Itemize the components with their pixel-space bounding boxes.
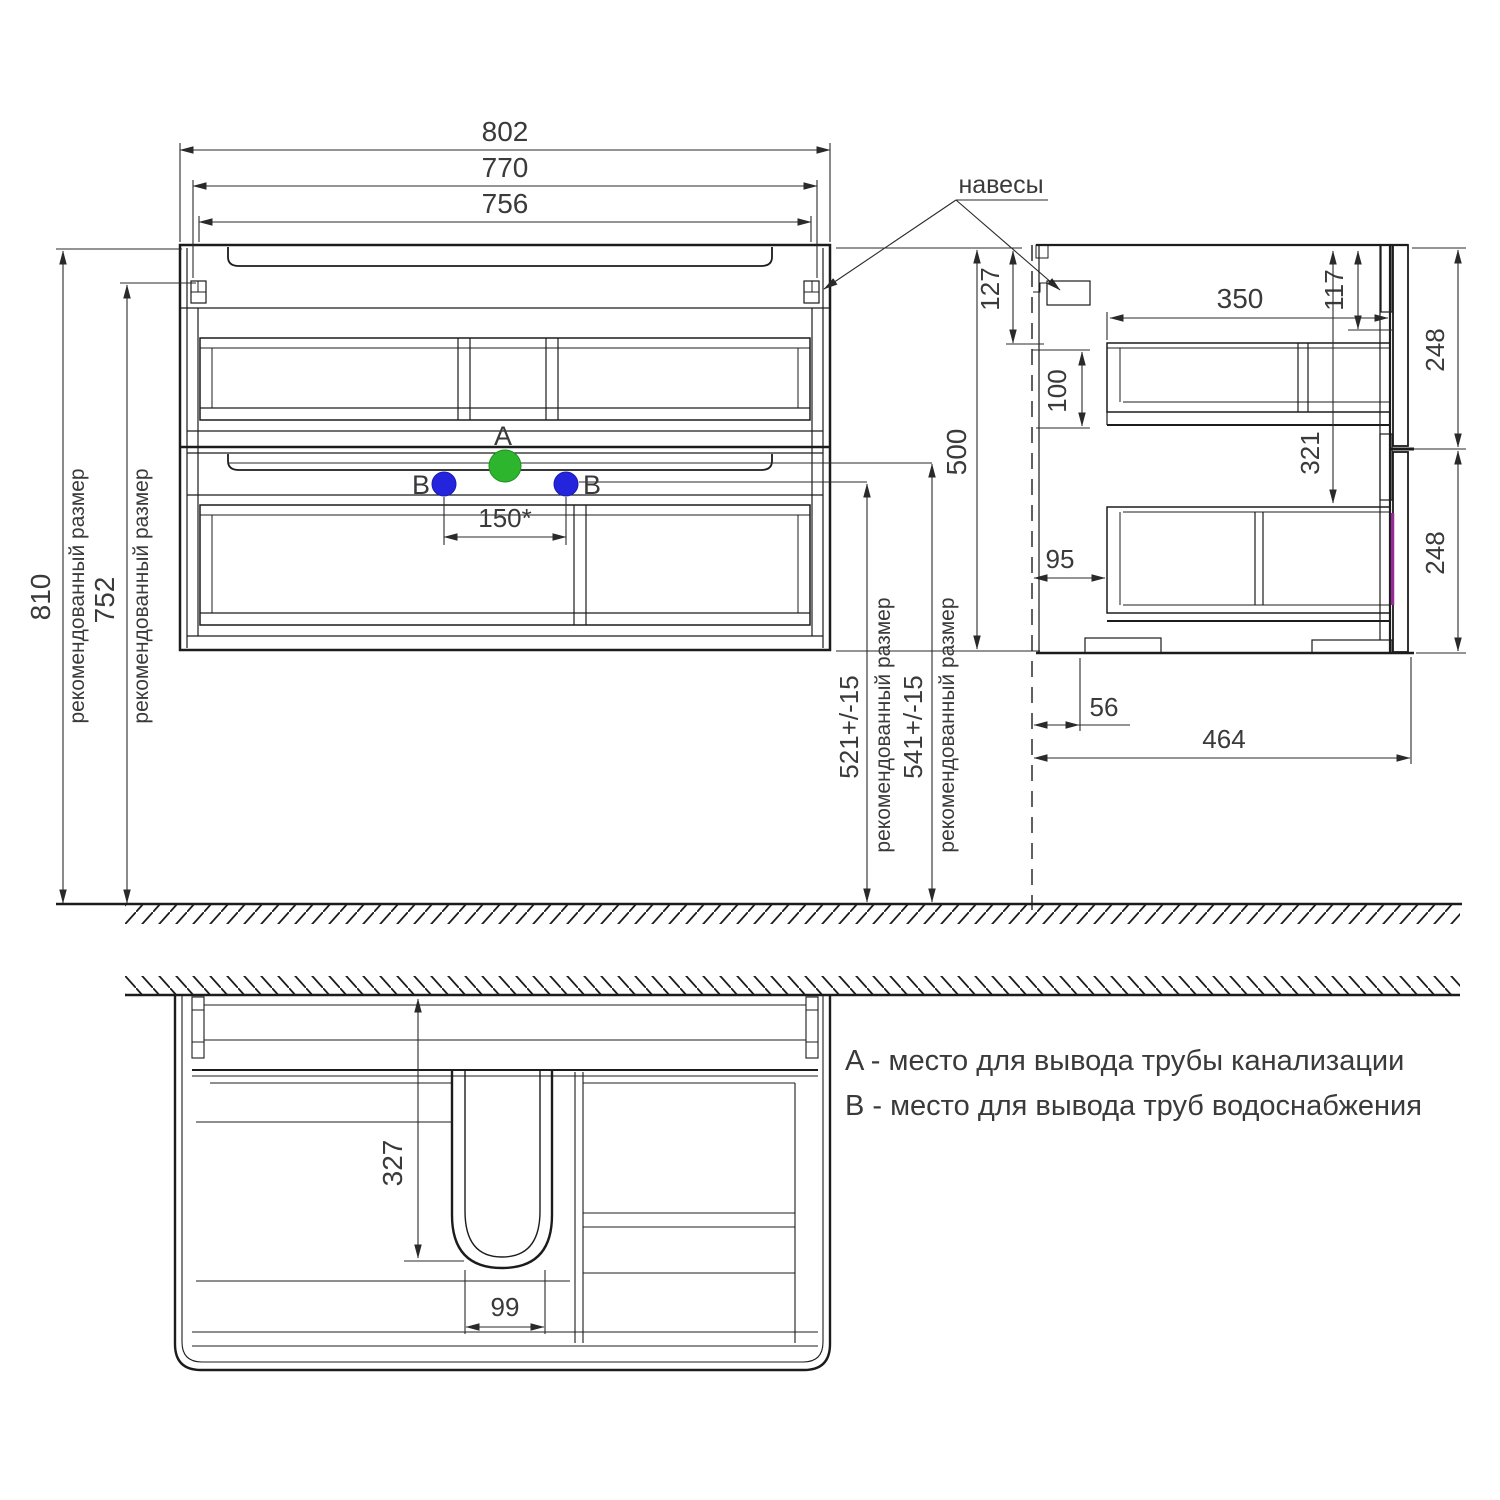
water-outlet-marker-b-right xyxy=(554,472,578,496)
dim-810-note: рекомендованный размер xyxy=(66,468,89,723)
dim-521-label: 521+/-15 xyxy=(834,675,864,778)
legend-item-a: A - место для вывода трубы канализации xyxy=(845,1045,1404,1077)
technical-drawing-page: A B B 150* 802 770 756 810 рекомендованн… xyxy=(0,0,1500,1500)
legend-item-b: B - место для вывода труб водоснабжения xyxy=(845,1090,1422,1122)
dim-drain-spacing: 150* xyxy=(444,497,566,545)
dim-541-note: рекомендованный размер xyxy=(936,597,959,852)
marker-a-label: A xyxy=(494,421,512,451)
siphon-cutout-outer xyxy=(452,1070,552,1268)
dim-99-label: 99 xyxy=(491,1292,520,1322)
wall-hatch xyxy=(125,976,1460,995)
front-view: A B B 150* xyxy=(180,245,932,650)
front-top-dimensions: 802 770 756 xyxy=(180,116,830,278)
side-foot-left xyxy=(1085,638,1161,653)
dim-752-note: рекомендованный размер xyxy=(130,468,153,723)
side-lower-drawer-box xyxy=(1107,507,1390,621)
upper-drawer-front xyxy=(1393,245,1408,446)
water-outlet-marker-b-left xyxy=(432,472,456,496)
dim-95-label: 95 xyxy=(1046,544,1075,574)
dim-248-lower-label: 248 xyxy=(1420,531,1450,574)
marker-b-left-label: B xyxy=(412,470,430,500)
front-hanger-left xyxy=(191,281,206,303)
dim-810-label: 810 xyxy=(25,574,56,621)
front-hanger-right xyxy=(804,281,819,303)
hangers-callout: навесы xyxy=(824,171,1060,290)
dim-770-label: 770 xyxy=(482,152,529,183)
dim-248-upper-label: 248 xyxy=(1420,328,1450,371)
lower-drawer-front xyxy=(1393,452,1408,652)
vanity-cabinet-drawing: A B B 150* 802 770 756 810 рекомендованн… xyxy=(0,0,1500,1500)
dim-127-label: 127 xyxy=(975,267,1005,310)
floor xyxy=(56,904,1462,924)
siphon-cutout-inner xyxy=(465,1070,540,1257)
dim-521-note: рекомендованный размер xyxy=(872,597,895,852)
dim-500-label: 500 xyxy=(941,429,972,476)
marker-b-right-label: B xyxy=(583,470,601,500)
dim-321-label: 321 xyxy=(1295,431,1325,474)
dim-541-label: 541+/-15 xyxy=(898,675,928,778)
drain-outlet-marker-a xyxy=(489,450,521,482)
dim-464-label: 464 xyxy=(1202,724,1245,754)
dim-100-label: 100 xyxy=(1042,369,1072,412)
dim-327-label: 327 xyxy=(377,1140,408,1187)
dim-756-label: 756 xyxy=(482,188,529,219)
dim-802-label: 802 xyxy=(482,116,529,147)
upper-drawer-frame xyxy=(200,338,810,420)
dim-350-label: 350 xyxy=(1217,283,1264,314)
floor-hatch xyxy=(125,905,1460,924)
bottom-right-compartment xyxy=(575,1072,795,1343)
legend: A - место для вывода трубы канализации B… xyxy=(845,1045,1422,1122)
hangers-label: навесы xyxy=(958,171,1043,199)
front-right-dimensions: 521+/-15 рекомендованный размер 541+/-15… xyxy=(834,248,1040,902)
side-foot-right xyxy=(1312,640,1392,653)
dim-117-label: 117 xyxy=(1319,269,1349,310)
dim-150-label: 150* xyxy=(478,503,532,533)
side-upper-drawer-box xyxy=(1107,343,1390,425)
hangers-leader-front xyxy=(824,200,956,289)
sink-rim-profile xyxy=(228,247,772,266)
dim-752-label: 752 xyxy=(89,577,120,624)
dim-56-label: 56 xyxy=(1090,692,1119,722)
front-left-dimensions: 810 рекомендованный размер 752 рекомендо… xyxy=(25,249,196,903)
bottom-hanger-strips xyxy=(192,997,818,1058)
bottom-view: 327 99 xyxy=(125,976,1460,1370)
